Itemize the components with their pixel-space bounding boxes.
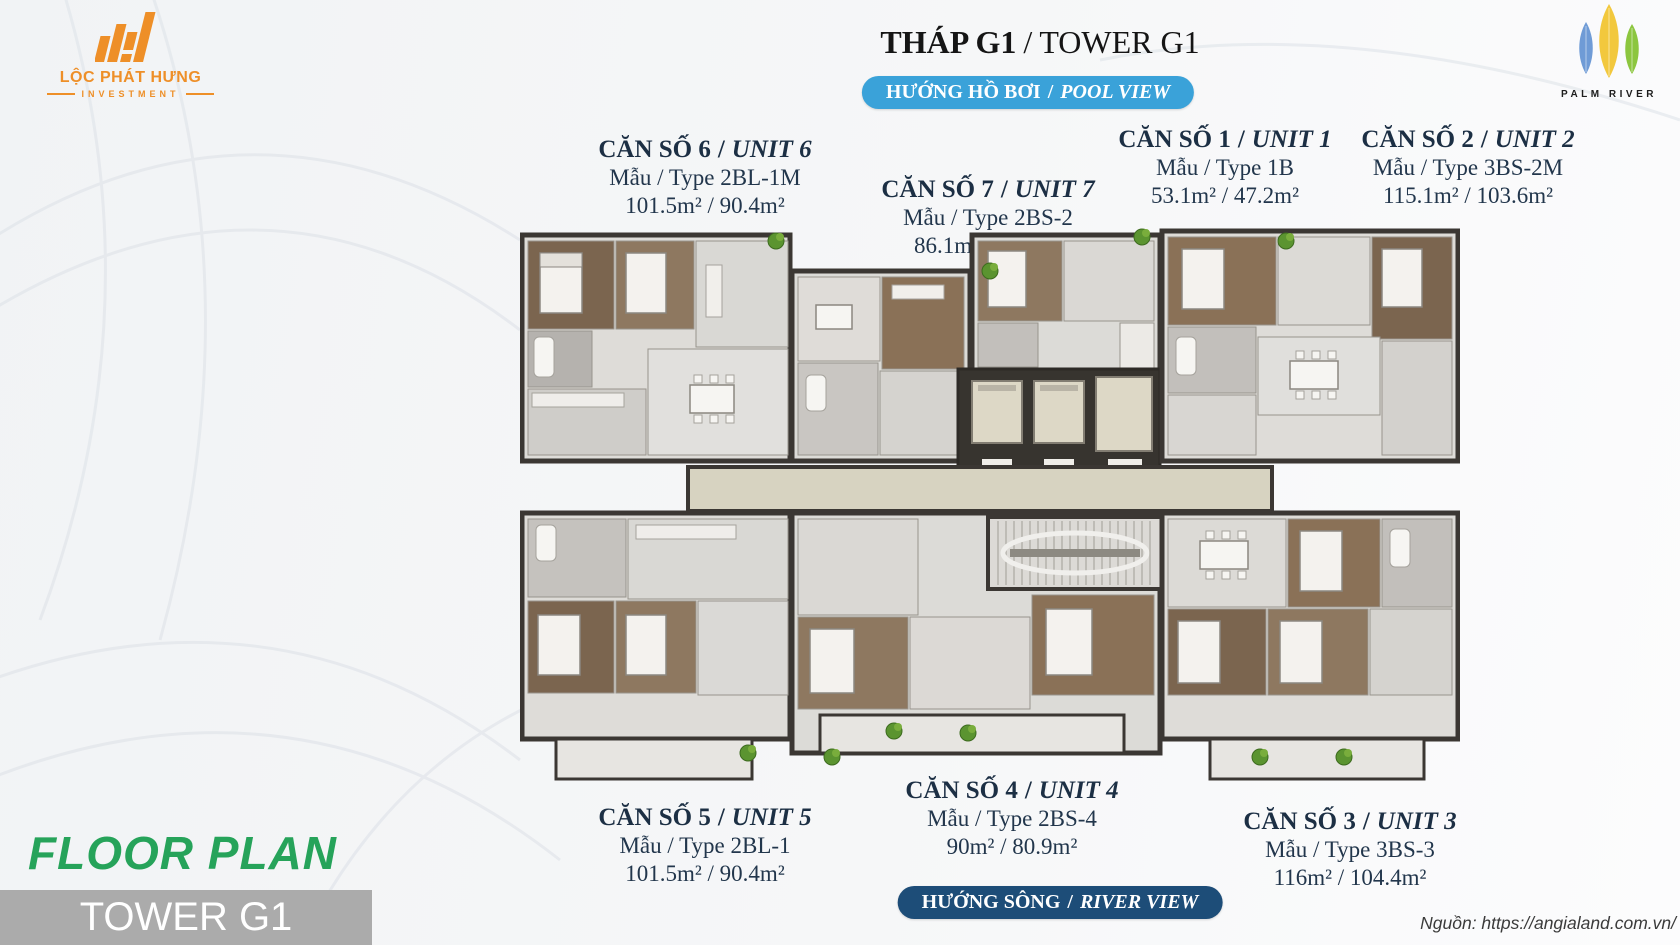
unit-2-name-en: UNIT 2 [1495,126,1575,153]
unit-6-name-en: UNIT 6 [732,136,812,163]
plant-icon [824,749,840,765]
unit-3-separator: / [1363,808,1370,835]
unit-5-plan [522,513,790,779]
palm-river-logo-name: PALM RIVER [1544,89,1674,100]
unit-7-plan [792,271,970,461]
unit-7-name-en: UNIT 7 [1015,176,1095,203]
palm-river-logo-icon [1570,4,1648,82]
loc-phat-hung-logo-name: LỘC PHÁT HƯNG [18,69,243,87]
unit-2-area: 115.1m² / 103.6m² [1361,182,1574,210]
unit-2-name-vi: CĂN SỐ 2 [1361,126,1474,153]
unit-5-separator: / [718,804,725,831]
tower-label-bar: TOWER G1 [0,890,372,945]
unit-3-name-en: UNIT 3 [1377,808,1457,835]
unit-6-separator: / [718,136,725,163]
unit-7-separator: / [1001,176,1008,203]
unit-3-plan [1162,513,1458,779]
unit-1-type: Mẫu / Type 1B [1118,154,1331,182]
floor-plan-drawing [520,225,1460,785]
unit-5-name-vi: CĂN SỐ 5 [598,804,711,831]
unit-4-label: CĂN SỐ 4/UNIT 4 Mẫu / Type 2BS-4 90m² / … [905,777,1118,861]
floor-plan-page: { "logos": { "loc_phat_hung": { "name": … [0,0,1680,945]
plant-icon [740,745,756,761]
plant-icon [768,233,784,249]
unit-5-label: CĂN SỐ 5/UNIT 5 Mẫu / Type 2BL-1 101.5m²… [598,804,811,888]
page-title: THÁP G1/TOWER G1 [880,24,1199,61]
unit-7-name-vi: CĂN SỐ 7 [881,176,994,203]
unit-6-name-vi: CĂN SỐ 6 [598,136,711,163]
plant-icon [886,723,902,739]
pool-view-separator: / [1048,81,1054,103]
unit-6-type: Mẫu / Type 2BL-1M [598,164,811,192]
river-view-banner-en: RIVER VIEW [1080,891,1198,913]
loc-phat-hung-logo-subtitle: INVESTMENT [81,89,179,99]
page-title-en: TOWER G1 [1039,24,1199,60]
floor-plan-title: FLOOR PLAN [28,826,337,880]
plant-icon [1252,749,1268,765]
unit-4-area: 90m² / 80.9m² [905,833,1118,861]
page-title-vi: THÁP G1 [880,24,1016,60]
pool-view-banner: HƯỚNG HỒ BƠI/POOL VIEW [862,76,1194,109]
unit-6-label: CĂN SỐ 6/UNIT 6 Mẫu / Type 2BL-1M 101.5m… [598,136,811,220]
tower-label: TOWER G1 [80,895,293,940]
logo-rule-left [47,93,75,95]
stairwell [988,517,1162,589]
unit-3-area: 116m² / 104.4m² [1243,864,1456,892]
unit-3-name-vi: CĂN SỐ 3 [1243,808,1356,835]
title-separator: / [1023,24,1032,60]
plant-icon [960,725,976,741]
pool-view-banner-vi: HƯỚNG HỒ BƠI [886,81,1041,103]
unit-5-name-en: UNIT 5 [732,804,812,831]
unit-1-separator: / [1238,126,1245,153]
plant-icon [1336,749,1352,765]
river-view-banner: HƯỚNG SÔNG/RIVER VIEW [898,886,1223,919]
unit-1-area: 53.1m² / 47.2m² [1118,182,1331,210]
unit-3-type: Mẫu / Type 3BS-3 [1243,836,1456,864]
plant-icon [1134,229,1150,245]
unit-2-separator: / [1481,126,1488,153]
plant-icon [1278,233,1294,249]
unit-4-type: Mẫu / Type 2BS-4 [905,805,1118,833]
unit-1-name-en: UNIT 1 [1252,126,1332,153]
unit-2-label: CĂN SỐ 2/UNIT 2 Mẫu / Type 3BS-2M 115.1m… [1361,126,1574,210]
loc-phat-hung-logo-icon [95,10,167,62]
unit-2-type: Mẫu / Type 3BS-2M [1361,154,1574,182]
central-corridor [688,467,1272,511]
unit-3-label: CĂN SỐ 3/UNIT 3 Mẫu / Type 3BS-3 116m² /… [1243,808,1456,892]
unit-5-balcony [556,739,752,779]
loc-phat-hung-logo: LỘC PHÁT HƯNG INVESTMENT [18,10,243,99]
palm-river-logo: PALM RIVER [1544,4,1674,100]
source-credit: Nguồn: https://angialand.com.vn/ [1420,913,1676,934]
elevator-core [958,369,1160,467]
unit-6-area: 101.5m² / 90.4m² [598,192,811,220]
unit-3-balcony [1210,739,1424,779]
unit-1-name-vi: CĂN SỐ 1 [1118,126,1231,153]
pool-view-banner-en: POOL VIEW [1060,81,1170,103]
river-view-banner-vi: HƯỚNG SÔNG [922,891,1061,913]
unit-1-label: CĂN SỐ 1/UNIT 1 Mẫu / Type 1B 53.1m² / 4… [1118,126,1331,210]
plant-icon [982,263,998,279]
logo-rule-right [186,93,214,95]
unit-5-type: Mẫu / Type 2BL-1 [598,832,811,860]
unit-6-plan [522,235,790,461]
river-view-separator: / [1067,891,1073,913]
unit-5-area: 101.5m² / 90.4m² [598,860,811,888]
unit-2-plan [1162,231,1458,461]
